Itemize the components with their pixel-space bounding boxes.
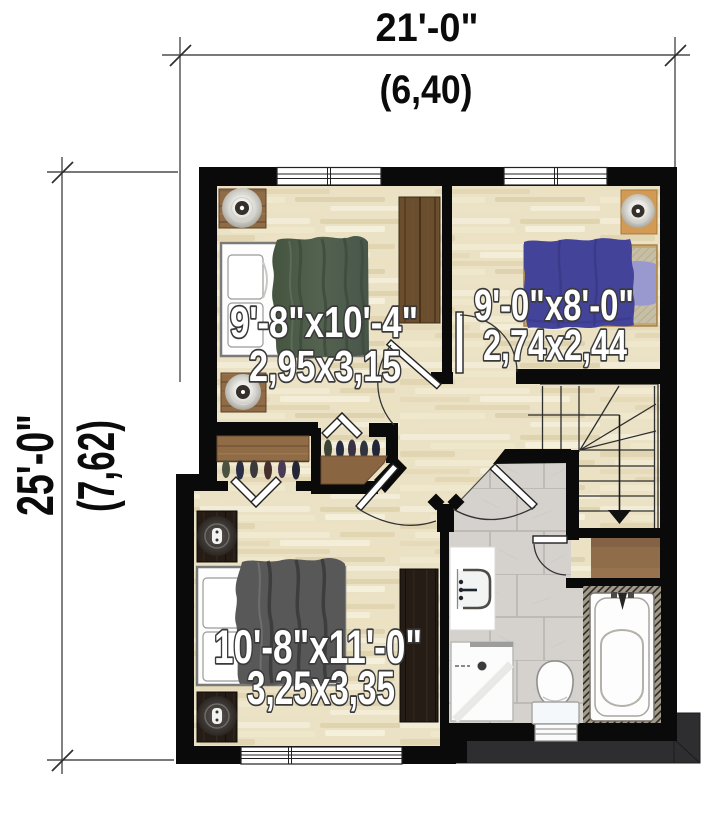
svg-text:(6,40): (6,40)	[380, 68, 473, 112]
svg-text:25'-0": 25'-0"	[7, 414, 65, 516]
svg-text:(7,62): (7,62)	[68, 420, 126, 512]
svg-text:2,95x3,15: 2,95x3,15	[249, 342, 401, 391]
svg-text:2,74x2,44: 2,74x2,44	[483, 321, 627, 370]
svg-text:3,25x3,35: 3,25x3,35	[247, 661, 395, 714]
svg-text:21'-0": 21'-0"	[376, 6, 479, 50]
svg-text:9'-8"x10'-4": 9'-8"x10'-4"	[230, 298, 418, 347]
